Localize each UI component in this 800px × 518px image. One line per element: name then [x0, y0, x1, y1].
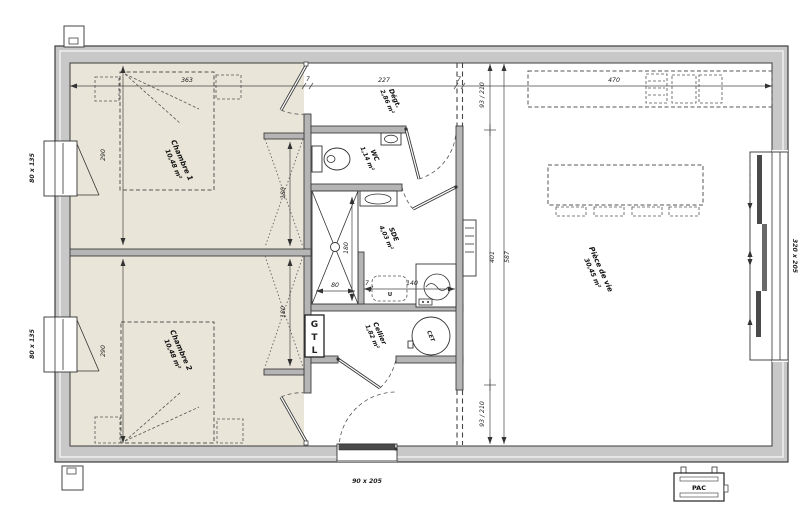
entry-door-leaf [339, 444, 395, 450]
wall-wc-bottom [311, 184, 402, 191]
dim-227: 227 [378, 77, 390, 84]
bay-window [750, 150, 788, 362]
wall-closet2-stub [264, 369, 304, 375]
utility-box-bottom-left [62, 466, 83, 490]
wall-shower-stub [358, 252, 364, 304]
appliance-slot-label: U [388, 292, 392, 298]
dim-93-210-top: 93 / 210 [479, 82, 486, 108]
gtl-letter-l: L [312, 346, 318, 356]
window-bottom-label: 80 x 135 [29, 329, 36, 359]
dim-7-sde: 7 [365, 280, 369, 287]
window-top-label: 80 x 135 [29, 153, 36, 183]
wall-between-bedrooms [70, 249, 311, 256]
dim-93-210-bottom: 93 / 210 [479, 401, 486, 427]
wall-closet1-stub [264, 133, 304, 139]
dim-363: 363 [181, 77, 193, 84]
dim-587: 587 [504, 251, 511, 263]
bay-panel-3 [756, 291, 761, 337]
dim-180-shower: 180 [343, 242, 350, 254]
floor-plan: U G T L CET [0, 0, 800, 518]
entry-door-label: 90 x 205 [352, 478, 382, 485]
heat-pump-label: PAC [692, 484, 706, 492]
washing-machine-icon [416, 264, 456, 307]
bay-panel-2 [762, 224, 767, 291]
gtl-letter-t: T [311, 333, 318, 343]
dim-180-closet1: 180 [280, 187, 287, 199]
bay-window-label: 320 x 205 [791, 239, 798, 273]
dim-180-closet2: 180 [280, 306, 287, 318]
handbasin-icon [381, 133, 401, 145]
heat-pump-unit: PAC [674, 467, 728, 501]
toilet-icon [312, 146, 350, 172]
dim-140: 140 [406, 280, 418, 287]
dim-470: 470 [608, 77, 620, 84]
sink-icon [360, 191, 397, 206]
dim-7: 7 [306, 76, 310, 83]
wall-wc-top [311, 126, 406, 133]
dim-401: 401 [489, 251, 496, 263]
kitchen-tall-unit [463, 220, 476, 276]
wall-living-left [456, 126, 463, 390]
gtl-letter-g: G [311, 320, 318, 330]
utility-box-top-left [64, 26, 84, 47]
dim-290-ch1: 290 [100, 149, 107, 161]
wall-cellier-bottom-right [396, 356, 463, 363]
dim-290-ch2: 290 [100, 345, 107, 357]
bay-panel-1 [757, 155, 762, 224]
dim-80-shower: 80 [331, 282, 339, 289]
dim-7: 7 [457, 76, 461, 83]
gtl-box: G T L [305, 315, 324, 357]
